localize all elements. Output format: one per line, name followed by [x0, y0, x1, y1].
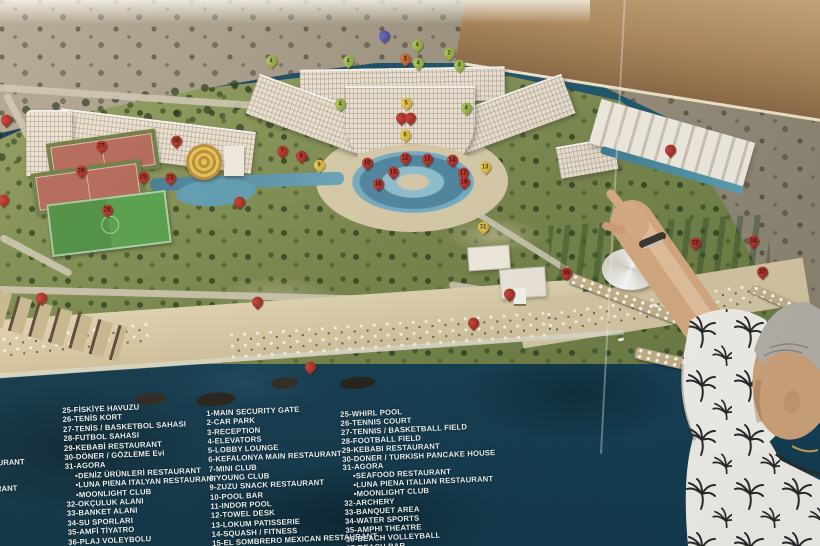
map-pin	[404, 113, 416, 129]
map-pin-26: 26	[75, 166, 87, 182]
map-pin-number: 8	[295, 153, 307, 162]
map-pin-number: 4	[411, 42, 423, 51]
map-pin-number: 11	[399, 155, 411, 164]
map-pin-9: 9	[313, 160, 325, 176]
map-pin-4: 4	[453, 60, 465, 76]
legend-column-turkish: 25-FİSKİYE HAVUZU26-TENİS KORT27-TENİS /…	[62, 399, 220, 546]
map-pin-8: 8	[295, 151, 307, 167]
map-pin-number: 4	[460, 105, 472, 114]
water-slide-spiral	[186, 144, 222, 180]
map-pin-number: 9	[313, 162, 325, 171]
face-shading	[757, 380, 760, 422]
map-pin-number: 26	[75, 168, 87, 177]
map-pin-27: 27	[95, 141, 107, 157]
agora-building	[467, 245, 511, 272]
map-pin-number: 30	[170, 138, 182, 147]
map-pin-4: 4	[411, 40, 423, 56]
map-pin-4: 4	[265, 56, 277, 72]
map-pin-4: 4	[460, 103, 472, 119]
map-pin-number: 27	[95, 143, 107, 152]
map-pin-6: 6	[399, 130, 411, 146]
gold-chain	[792, 446, 818, 451]
map-pin-12: 12	[421, 154, 433, 170]
map-pin-7: 7	[276, 146, 288, 162]
resort-map-photo: 25-FİSKİYE HAVUZU26-TENİS KORT27-TENİS /…	[0, 0, 820, 546]
map-pin	[378, 31, 390, 47]
map-pin-number: 14	[446, 157, 458, 166]
map-pin	[467, 318, 479, 334]
map-pin-13: 13	[479, 162, 491, 178]
map-pin-number: 18	[458, 179, 470, 188]
map-pin-number: 23	[164, 175, 176, 184]
map-pin-number: 15	[387, 169, 399, 178]
map-pin-number: 12	[421, 156, 433, 165]
map-pin-11: 11	[399, 153, 411, 169]
map-pin-30: 30	[170, 136, 182, 152]
map-pin-number: 4	[265, 58, 277, 67]
map-pin-15: 15	[387, 167, 399, 183]
legend-edge-fragment: RANT	[0, 484, 18, 494]
lifeguard-tower	[514, 288, 526, 304]
map-pin-number: 4	[334, 101, 346, 110]
slide-tower	[224, 146, 244, 176]
map-pin-number: 28	[101, 207, 113, 216]
map-pin	[503, 289, 515, 305]
map-pin-3: 3	[399, 54, 411, 70]
map-pin-18: 18	[458, 177, 470, 193]
map-pin	[251, 297, 263, 313]
map-pin-number: 10	[361, 160, 373, 169]
map-pin-28: 28	[101, 205, 113, 221]
map-pin-number: 31	[477, 224, 489, 233]
map-pin	[304, 362, 316, 378]
map-pin-number: 13	[479, 164, 491, 173]
map-pin-number: 4	[412, 60, 424, 69]
legend-edge-fragment: TAURANT	[0, 457, 25, 468]
map-pin-4: 4	[412, 58, 424, 74]
map-pin-number: 25	[137, 174, 149, 183]
map-pin	[233, 197, 245, 213]
pointing-man	[540, 150, 820, 546]
map-pin	[0, 115, 12, 131]
map-pin-25: 25	[137, 172, 149, 188]
map-pin-number: 4	[342, 58, 354, 67]
map-pin-number: 3	[399, 56, 411, 65]
index-finger	[611, 194, 624, 210]
map-pin	[0, 195, 9, 211]
map-pin	[35, 293, 47, 309]
map-pin-number: 5	[400, 100, 412, 109]
map-pin-number: 2	[443, 50, 455, 59]
map-pin-4: 4	[334, 99, 346, 115]
map-pin-31: 31	[477, 222, 489, 238]
map-pin-10: 10	[361, 158, 373, 174]
legend-column-english: 25-WHIRL POOL26-TENNIS COURT27-TENNIS / …	[340, 404, 500, 546]
map-pin-16: 16	[372, 179, 384, 195]
map-pin-number: 6	[399, 132, 411, 141]
map-pin-4: 4	[342, 56, 354, 72]
thumb	[606, 226, 622, 230]
map-pin-number: 4	[453, 62, 465, 71]
map-pin-number: 7	[276, 148, 288, 157]
map-pin-number: 16	[372, 181, 384, 190]
map-pin-23: 23	[164, 173, 176, 189]
